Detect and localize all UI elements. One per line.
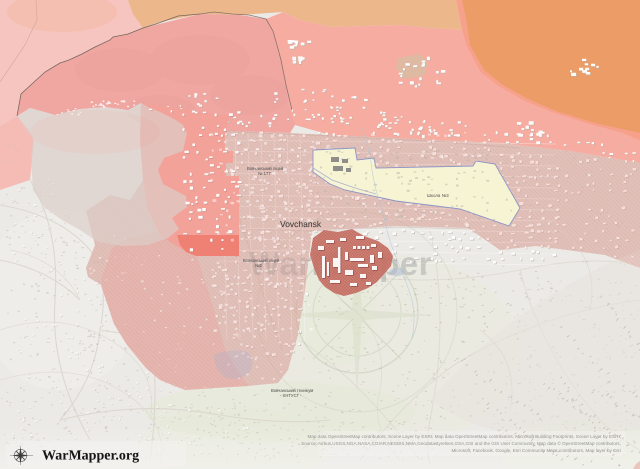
- svg-text:Школа №3: Школа №3: [427, 193, 449, 198]
- svg-text:WarMapper.org: WarMapper.org: [42, 449, 139, 464]
- svg-text:Map data OpenStreetMap contrib: Map data OpenStreetMap contributors, Sce…: [307, 434, 621, 439]
- svg-text:№ 177: № 177: [258, 171, 271, 176]
- svg-text:Microsoft, Facebook, Google, E: Microsoft, Facebook, Google, Esri Commun…: [451, 448, 621, 453]
- svg-text:№2: №2: [255, 263, 262, 268]
- svg-text:Source: Airbus,USGS,NGA,NASA,C: Source: Airbus,USGS,NGA,NASA,CGIAR,NESDI…: [301, 440, 621, 446]
- svg-text:Vovchansk: Vovchansk: [280, 219, 322, 229]
- svg-text:- ХНТУСГ -: - ХНТУСГ -: [280, 393, 302, 398]
